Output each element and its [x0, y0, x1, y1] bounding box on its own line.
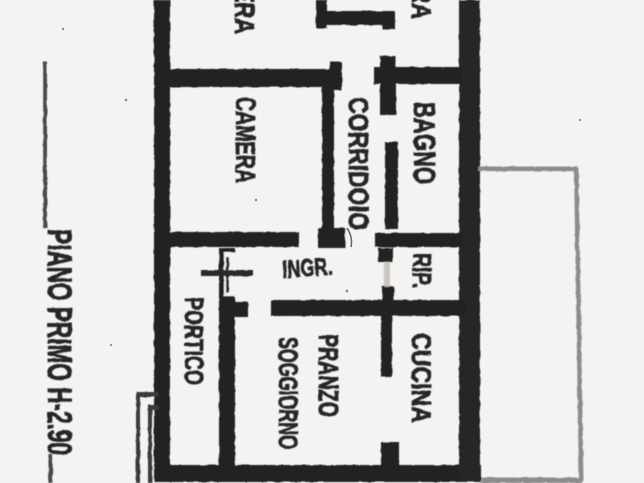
svg-text:CORRIDOIO: CORRIDOIO	[343, 97, 374, 230]
svg-text:RIP.: RIP.	[407, 253, 437, 288]
svg-text:CAMERA: CAMERA	[406, 0, 437, 19]
svg-text:PRANZO: PRANZO	[313, 334, 344, 417]
svg-text:PORTICO: PORTICO	[179, 297, 209, 385]
svg-text:CUCINA: CUCINA	[406, 333, 436, 423]
svg-text:CAMERA: CAMERA	[230, 97, 261, 183]
svg-text:INGR.: INGR.	[281, 253, 333, 284]
svg-text:CAMERA: CAMERA	[229, 0, 260, 34]
svg-text:SOGGIORNO: SOGGIORNO	[273, 337, 303, 449]
svg-text:PIANO PRIMO H-2.90: PIANO PRIMO H-2.90	[40, 229, 78, 455]
svg-text:BAGNO: BAGNO	[407, 102, 442, 184]
